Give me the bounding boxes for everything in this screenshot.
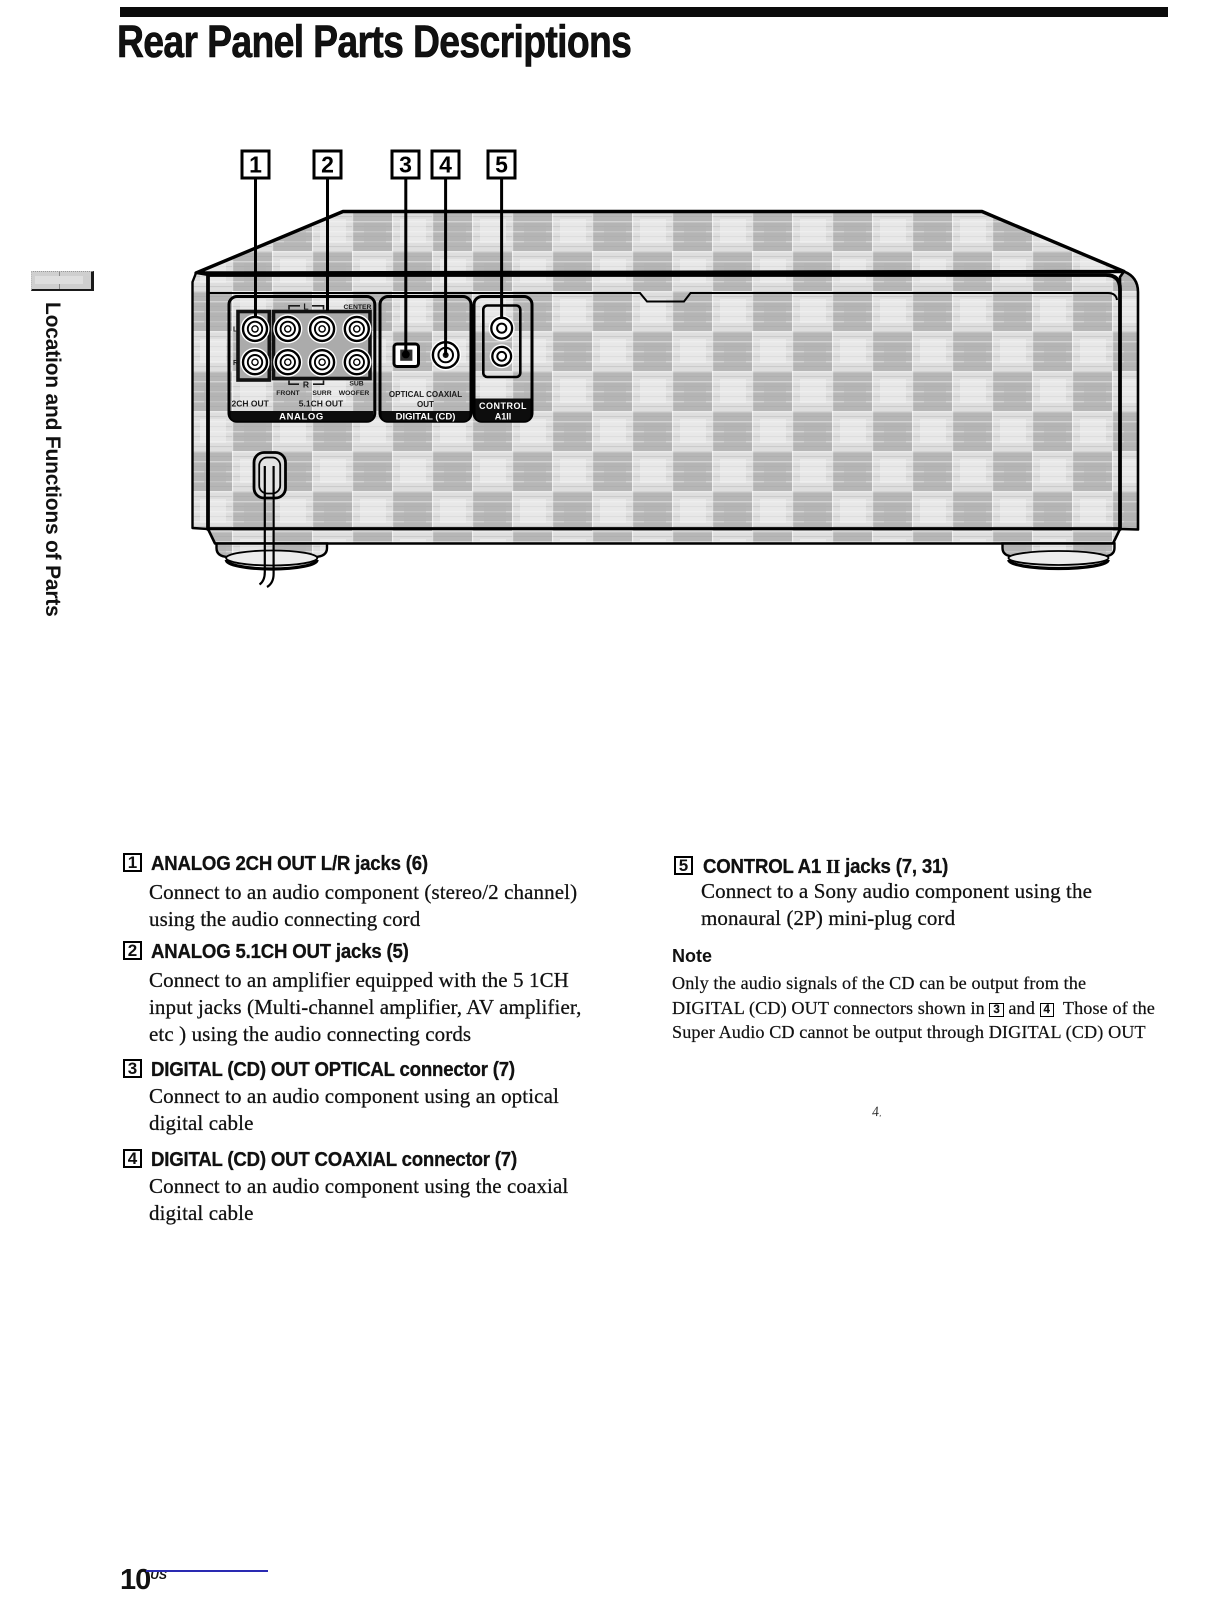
svg-text:CONTROL: CONTROL <box>479 401 527 411</box>
svg-text:5.1CH OUT: 5.1CH OUT <box>299 399 344 409</box>
svg-text:CENTER: CENTER <box>344 304 372 311</box>
svg-text:DIGITAL (CD): DIGITAL (CD) <box>396 412 456 423</box>
svg-text:OPTICAL COAXIAL: OPTICAL COAXIAL <box>389 390 462 399</box>
svg-text:ANALOG: ANALOG <box>279 412 324 423</box>
svg-text:WOOFER: WOOFER <box>339 390 370 397</box>
svg-text:R: R <box>233 360 238 367</box>
svg-text:3: 3 <box>399 152 412 178</box>
svg-text:1: 1 <box>249 152 262 178</box>
svg-text:2CH OUT: 2CH OUT <box>232 399 270 409</box>
svg-text:4: 4 <box>439 152 452 178</box>
svg-text:OUT: OUT <box>417 400 434 409</box>
svg-text:5: 5 <box>495 152 508 178</box>
svg-text:FRONT: FRONT <box>276 390 300 397</box>
svg-text:SURR: SURR <box>312 390 331 397</box>
svg-text:SUB: SUB <box>349 381 363 388</box>
svg-text:L: L <box>303 302 308 312</box>
svg-text:A1II: A1II <box>495 412 512 422</box>
svg-text:L: L <box>233 327 238 334</box>
svg-text:R: R <box>303 380 309 390</box>
svg-text:2: 2 <box>321 152 334 178</box>
